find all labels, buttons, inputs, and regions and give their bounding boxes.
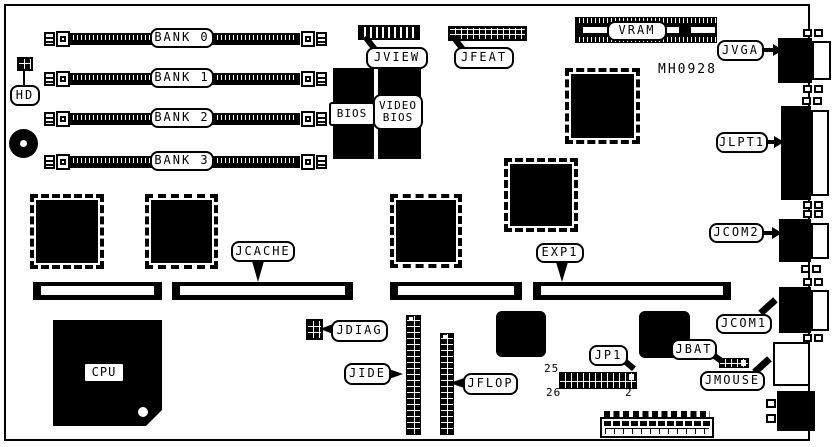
power-connector — [777, 391, 815, 431]
power-header — [600, 417, 714, 438]
hd-connector — [17, 57, 33, 71]
slot-latch — [301, 31, 315, 47]
bracket-tab — [766, 414, 776, 423]
slot-latch — [56, 154, 70, 170]
jp1-pin2: 2 — [625, 386, 633, 399]
slot-endcap — [44, 155, 55, 169]
bracket-tab — [813, 97, 822, 105]
jlpt1-label: JLPT1 — [716, 132, 768, 153]
qfp-chip-2 — [151, 200, 212, 263]
bracket-tab — [814, 29, 823, 37]
slot-endcap — [316, 72, 327, 86]
slot-latch — [56, 31, 70, 47]
bracket-tab — [803, 278, 812, 286]
jcom2-label: JCOM2 — [709, 223, 764, 243]
jcache-pointer — [252, 261, 264, 282]
bracket-tab — [812, 265, 821, 273]
exp1-label: EXP1 — [536, 243, 584, 263]
bank1-slot: BANK 1 — [44, 70, 327, 88]
slot-endcap — [316, 32, 327, 46]
jflop-label: JFLOP — [463, 373, 518, 395]
jide-label: JIDE — [344, 363, 391, 385]
slot-latch — [301, 154, 315, 170]
slot-latch — [301, 71, 315, 87]
jvga-arrow-head — [773, 44, 783, 56]
video-controller-chip — [571, 74, 634, 138]
com1-port — [779, 287, 811, 333]
motherboard-diagram: HD BANK 0 BANK 1 BANK 2 BANK 3 JVIEW — [0, 0, 834, 447]
cache-slot-1 — [33, 282, 162, 300]
qfp-chip-3 — [396, 200, 456, 262]
bracket-tab — [766, 399, 776, 408]
bracket-tab — [814, 278, 823, 286]
slot-latch — [301, 111, 315, 127]
slot-endcap — [316, 155, 327, 169]
bracket-tab — [814, 85, 823, 93]
parallel-port — [781, 106, 811, 200]
slot-endcap — [316, 112, 327, 126]
com2-dsub — [811, 223, 829, 259]
com2-port — [779, 219, 811, 262]
jvga-label: JVGA — [717, 40, 764, 61]
bracket-tab — [803, 29, 812, 37]
jp1-label: JP1 — [589, 345, 628, 366]
bank3-label: BANK 3 — [150, 151, 214, 171]
slot-endcap — [44, 112, 55, 126]
slot-latch — [56, 111, 70, 127]
slot-endcap — [44, 32, 55, 46]
bracket-tab — [803, 85, 812, 93]
jcache-slot — [172, 282, 353, 300]
jflop-pointer — [450, 378, 464, 388]
bracket-tab — [802, 97, 811, 105]
jmouse-label: JMOUSE — [700, 371, 765, 391]
parallel-dsub — [811, 110, 829, 196]
slot-latch — [56, 71, 70, 87]
slot-3 — [390, 282, 522, 300]
jdiag-label: JDIAG — [331, 320, 388, 342]
exp1-slot — [533, 282, 731, 300]
qfp-chip-1 — [36, 200, 98, 263]
speaker — [9, 129, 38, 158]
bank3-slot: BANK 3 — [44, 153, 327, 171]
jcom1-label: JCOM1 — [716, 314, 772, 334]
vga-dsub — [812, 41, 831, 80]
vga-port — [778, 38, 812, 83]
vram-label: VRAM — [607, 21, 667, 41]
bracket-tab — [803, 210, 812, 218]
video-bios-label: VIDEO BIOS — [373, 94, 423, 130]
jview-label: JVIEW — [366, 47, 428, 69]
jp1-pin25: 25 — [544, 362, 559, 375]
com1-dsub — [811, 290, 829, 331]
vram-window — [583, 27, 607, 33]
jbat-label: JBAT — [671, 339, 717, 360]
jide-header — [406, 315, 421, 435]
bank0-slot: BANK 0 — [44, 30, 327, 48]
bracket-tab — [814, 334, 823, 342]
bracket-tab — [803, 201, 812, 209]
vram-window — [691, 27, 715, 33]
qfp-chip-4 — [510, 164, 572, 226]
bracket-tab — [801, 265, 810, 273]
part-number: MH0928 — [658, 62, 717, 77]
jcache-label: JCACHE — [231, 241, 295, 262]
hd-label: HD — [10, 85, 40, 106]
chip-bottom-1 — [496, 311, 546, 357]
jp1-pin26: 26 — [546, 386, 561, 399]
bios-label: BIOS — [329, 102, 375, 126]
jcom2-arrow-head — [772, 227, 782, 239]
bank2-slot: BANK 2 — [44, 110, 327, 128]
slot-endcap — [44, 72, 55, 86]
jide-pointer — [389, 369, 403, 379]
jlpt1-arrow-head — [774, 136, 784, 148]
mouse-port — [773, 342, 810, 386]
bank1-label: BANK 1 — [150, 68, 214, 88]
jfeat-connector — [448, 26, 527, 41]
cpu-label: CPU — [83, 362, 125, 383]
jfeat-label: JFEAT — [454, 47, 514, 69]
bank0-label: BANK 0 — [150, 28, 214, 48]
bank2-label: BANK 2 — [150, 108, 214, 128]
jbat-connector — [719, 358, 749, 368]
exp1-pointer — [556, 262, 568, 282]
bracket-tab — [814, 210, 823, 218]
bracket-tab — [803, 334, 812, 342]
bracket-tab — [814, 201, 823, 209]
